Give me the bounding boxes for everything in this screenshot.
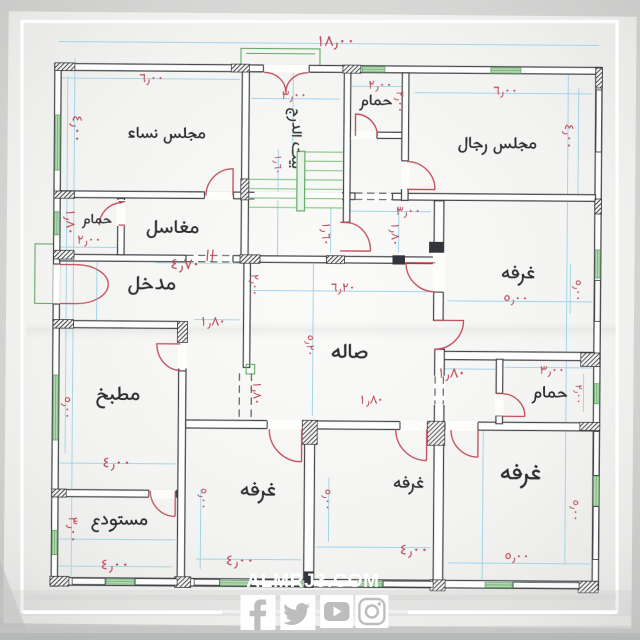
svg-text:ALMRJ3.COM: ALMRJ3.COM: [246, 571, 380, 592]
